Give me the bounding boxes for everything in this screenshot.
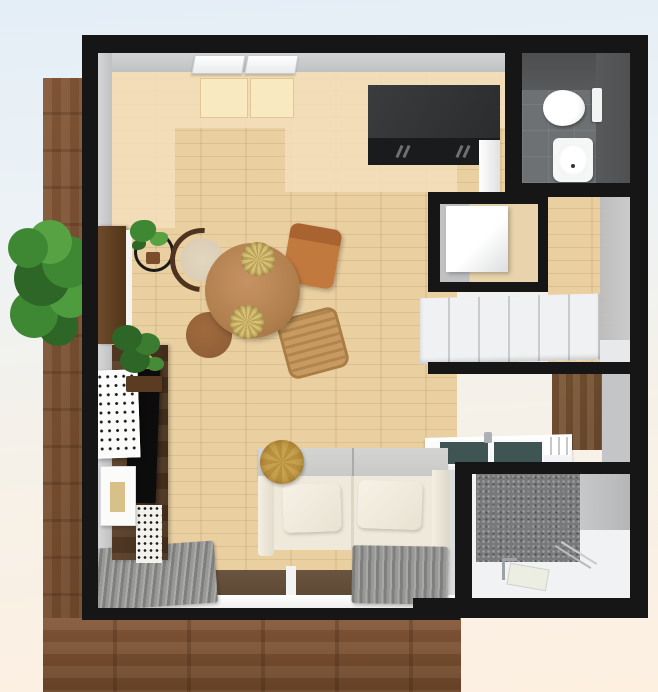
- shower-faucet: [502, 560, 505, 580]
- picture-art: [110, 482, 125, 512]
- floorplan-canvas: [0, 0, 658, 692]
- gold-round-cushion: [260, 440, 304, 484]
- shower-faucet-spout: [502, 558, 517, 561]
- gray-throw-blanket: [352, 545, 449, 605]
- sofa-pillow: [357, 480, 423, 530]
- gold-ornament: [142, 355, 154, 369]
- sofa-back-seam: [352, 448, 354, 478]
- balcony-through-glass: [296, 570, 352, 597]
- sofa-armrest: [432, 470, 450, 556]
- wall-top: [82, 35, 648, 53]
- wall-window: [244, 55, 298, 74]
- wardrobe-side-wall: [602, 374, 630, 462]
- plant-pot: [146, 252, 160, 264]
- large-plant: [8, 228, 48, 268]
- wall-shower-left: [455, 462, 472, 612]
- washbasin-bowl: [558, 144, 588, 176]
- patterned-textile: [136, 505, 162, 563]
- wall-bottom-main: [82, 608, 460, 620]
- top-wall-face: [98, 52, 505, 72]
- toilet-tank-panel: [592, 88, 602, 122]
- pale-floor-zone-left: [112, 128, 175, 228]
- white-door: [479, 140, 500, 196]
- hallway-wall: [600, 196, 630, 362]
- washing-machine: [446, 206, 508, 272]
- wall-bottom-entry: [413, 598, 648, 618]
- counter-rack: [544, 437, 570, 455]
- potted-plant: [112, 325, 142, 351]
- floor-mat: [250, 78, 294, 118]
- shower-room-tile-wall: [476, 474, 580, 562]
- balcony-deck-bottom: [43, 618, 461, 692]
- woven-plate: [241, 242, 275, 276]
- shower-room-wall-right: [580, 474, 630, 530]
- closet-sliding-doors: [420, 294, 600, 365]
- woven-plate: [230, 305, 264, 339]
- plant-pot: [126, 376, 162, 392]
- wall-right: [630, 35, 648, 618]
- sofa-armrest: [258, 476, 274, 556]
- closet-shelf: [600, 340, 630, 362]
- wall-closet-bottom: [428, 362, 648, 374]
- wall-toilet-left: [505, 35, 522, 196]
- wall-counter-bottom: [460, 462, 648, 474]
- floor-mat: [200, 78, 248, 118]
- counter-faucet: [484, 432, 492, 443]
- wall-left: [82, 35, 98, 620]
- wall-window: [191, 55, 245, 74]
- washbasin-drain: [571, 164, 575, 168]
- sofa-pillow: [282, 483, 342, 533]
- sofa-seat-seam: [351, 476, 354, 550]
- kitchen-unit-top: [368, 85, 500, 138]
- wall-toilet-bottom: [505, 183, 648, 197]
